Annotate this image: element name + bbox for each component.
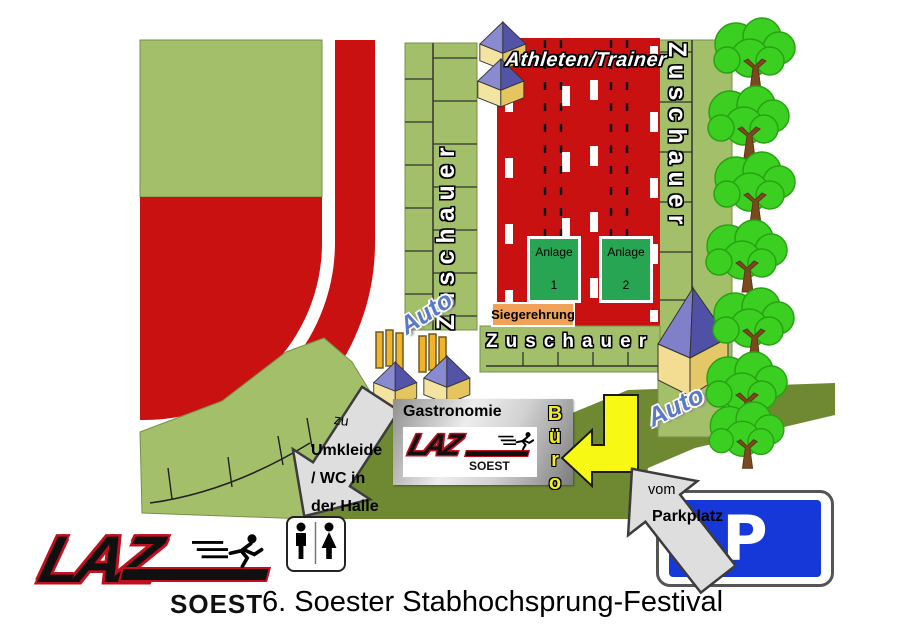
club-logo-big-name: LAZ	[32, 521, 166, 597]
catering-label: Gastronomie	[403, 403, 502, 421]
parking-prefix: vom	[648, 482, 675, 498]
award-ceremony-box: Siegerehrung	[491, 302, 575, 327]
wc-man-woman-icon	[288, 518, 343, 568]
runner-icon	[497, 431, 535, 451]
facility-1-label: Anlage	[535, 245, 572, 259]
logo-underline-bar	[464, 450, 530, 457]
catering-building: Gastronomie LAZ SOEST Büro	[393, 399, 573, 485]
facility-2-box: Anlage 2	[599, 236, 653, 303]
club-logo-small: LAZ SOEST	[403, 427, 537, 477]
spectators-right-label: Zuschauer	[662, 42, 691, 310]
festival-site-map: Athleten/Trainer Zuschauer Zuschauer Zus…	[0, 0, 900, 636]
facility-2-label: Anlage	[607, 245, 644, 259]
changing-rooms-text: Umkleide / WC in der Halle	[311, 437, 382, 521]
runner-icon-big	[192, 533, 264, 571]
wc-sign	[286, 516, 346, 572]
facility-1-box: Anlage 1	[527, 236, 581, 303]
athletes-trainers-label: Athleten/Trainer	[503, 49, 669, 72]
club-logo-small-city: SOEST	[469, 459, 510, 473]
spectators-left-label: Zuschauer	[432, 46, 461, 330]
changing-rooms-prefix: zu	[333, 411, 350, 429]
changing-rooms-line3: der Halle	[311, 493, 382, 521]
changing-rooms-line2: / WC in	[311, 465, 382, 493]
facility-2-number: 2	[623, 278, 630, 292]
parking-label: Parkplatz	[652, 508, 723, 526]
spectators-bottom-label: Zuschauer	[486, 331, 654, 353]
changing-rooms-line1: Umkleide	[311, 437, 382, 465]
club-logo-big-city: SOEST	[170, 589, 263, 620]
club-logo-small-name: LAZ	[404, 429, 462, 463]
facility-1-number: 1	[551, 278, 558, 292]
